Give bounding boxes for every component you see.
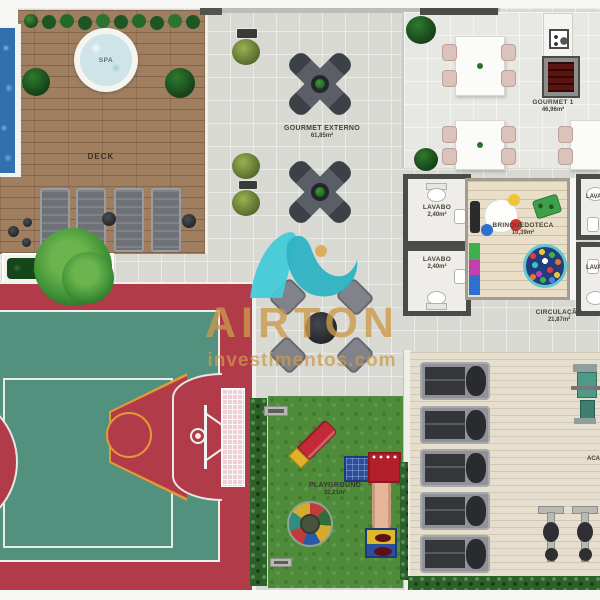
dining-table (570, 120, 600, 170)
plant-pot (23, 218, 32, 227)
deck-area: SPA DECK (0, 10, 208, 254)
table-plant-icon (477, 63, 483, 69)
carousel-hub (300, 514, 320, 534)
toy-car (532, 193, 563, 219)
lavabo-room (576, 174, 600, 240)
plant-center-icon (315, 79, 325, 89)
weight-bench (574, 418, 596, 424)
toy-shelf-green (469, 243, 480, 260)
spa-tub: SPA (74, 28, 138, 92)
hedge (400, 462, 408, 580)
dining-chair (501, 126, 516, 143)
pool (0, 24, 21, 177)
structure-seat (375, 534, 391, 542)
shrub-icon (232, 190, 260, 216)
weight-machine (573, 364, 597, 372)
bush-icon (165, 68, 195, 98)
lavabo4-label: LAVABO (586, 265, 600, 271)
dining-chair (558, 126, 573, 143)
sink-icon (587, 217, 599, 232)
play-structure-red (368, 452, 401, 483)
play-structure-blue (344, 456, 370, 482)
weight-machine (580, 400, 595, 420)
deck-label: DECK (56, 152, 146, 161)
dining-chair (442, 148, 457, 165)
treadmill (420, 362, 490, 400)
lavabo-room (576, 242, 600, 316)
shrub-icon (232, 153, 260, 179)
dining-chair (442, 44, 457, 61)
dining-chair (501, 70, 516, 87)
wall (200, 8, 222, 15)
weight-bar (571, 386, 600, 390)
gourmet1-label: GOURMET 1 46,96m² (508, 99, 598, 115)
dining-chair (442, 70, 457, 87)
watermark-brand: AIRTON (180, 299, 424, 348)
wall (420, 8, 498, 15)
toy-shelf-magenta (469, 260, 480, 275)
dining-chair (558, 148, 573, 165)
toilet-icon (586, 291, 600, 305)
brinquedoteca-room (465, 178, 570, 300)
dining-table (455, 36, 505, 96)
bench (238, 180, 258, 190)
table-plant-icon (477, 142, 483, 148)
toy-shelf-blue (469, 275, 480, 295)
dining-chair (501, 44, 516, 61)
exercise-machine (536, 506, 566, 566)
dining-table (455, 120, 505, 170)
play-structure-slide (372, 483, 391, 530)
structure-seat (374, 547, 392, 556)
plant-pot (8, 226, 19, 237)
brinquedoteca-label: BRINQUEDOTECA 10,39m² (476, 222, 570, 238)
bush-icon (22, 68, 50, 96)
gourmet-externo-label: GOURMET EXTERNO 61,85m² (262, 124, 382, 141)
weight-machine (577, 372, 597, 398)
academia-label: ACADEMIA (587, 456, 600, 462)
watermark-site: investimentos.com (180, 350, 424, 372)
plant-pot (22, 238, 31, 247)
court-side-box (221, 388, 245, 487)
exercise-machine (570, 506, 600, 566)
bench (236, 28, 258, 39)
table-center (311, 183, 329, 201)
lavabo1-label: LAVABO 2,40m² (405, 204, 469, 220)
cross-picnic-table (282, 154, 358, 230)
toilet-tank (426, 303, 447, 310)
palm-plant (62, 252, 114, 304)
basketball-hoop-icon (190, 428, 206, 444)
floor-plan: SPA DECK GOURMET EXTERNO (0, 0, 600, 600)
academia-room (410, 352, 600, 588)
cross-picnic-table (282, 46, 358, 122)
spa-label: SPA (99, 57, 113, 64)
hedge (250, 398, 267, 586)
table-center (311, 75, 329, 93)
treadmill (420, 535, 490, 573)
bench (270, 558, 292, 567)
dining-chair (442, 126, 457, 143)
shrub-icon (232, 39, 260, 65)
lavabo2-label: LAVABO 2,40m² (405, 256, 469, 272)
logo-dot (315, 245, 327, 257)
cooktop-icon (549, 29, 569, 49)
margin (0, 0, 600, 8)
spa-water: SPA (80, 34, 132, 86)
barbecue-grill (542, 56, 580, 98)
lounge-chair (114, 188, 144, 252)
plant-icon (406, 16, 436, 44)
bench (264, 406, 288, 416)
ball-pit (523, 244, 567, 288)
side-table (182, 214, 196, 228)
treadmill (420, 406, 490, 444)
free-throw-circle (106, 412, 152, 458)
kids-chair-yellow (508, 194, 520, 206)
play-structure-base (365, 528, 397, 558)
side-table (102, 212, 116, 226)
toilet-icon (427, 188, 446, 202)
treadmill (420, 492, 490, 530)
margin (0, 590, 600, 600)
carousel (287, 501, 333, 547)
circulacao-label: CIRCULAÇÃO 21,87m² (520, 309, 598, 325)
plant-center-icon (315, 187, 325, 197)
dining-chair (501, 148, 516, 165)
grill-coals (548, 62, 574, 92)
treadmill (420, 449, 490, 487)
hedge (408, 576, 600, 590)
lounge-chair (151, 188, 181, 252)
lavabo3-label: LAVABO (586, 194, 600, 200)
playground-label: PLAYGROUND 32,21m² (302, 481, 368, 498)
kitchen-counter (543, 13, 573, 58)
plant-row-icon (24, 14, 38, 28)
watermark-wave-logo (236, 228, 360, 302)
pool-water (0, 28, 15, 173)
plant-icon (414, 148, 438, 171)
